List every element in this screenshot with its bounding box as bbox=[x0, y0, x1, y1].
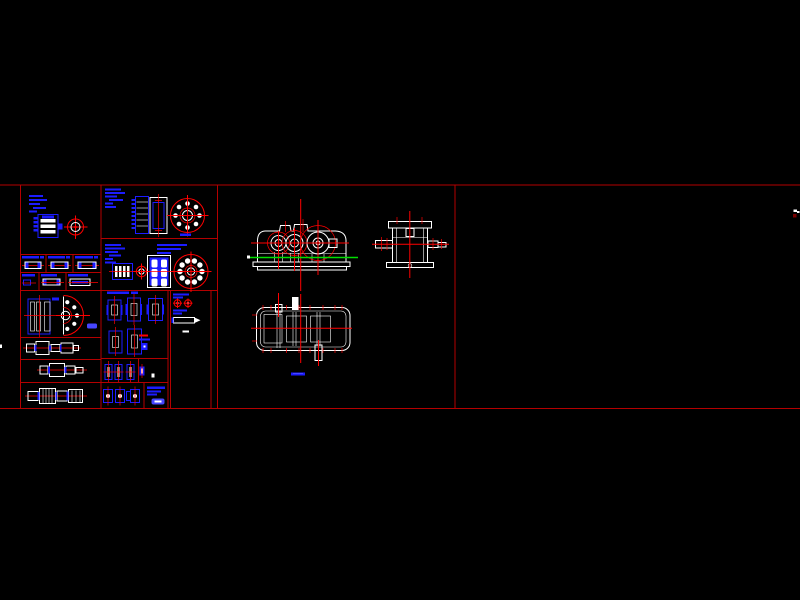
small-fasteners-drawing bbox=[104, 387, 166, 406]
front-view bbox=[251, 199, 350, 291]
blue-dash-marker bbox=[291, 373, 305, 376]
left-edge-speck bbox=[0, 345, 2, 349]
pin-fasteners-drawing bbox=[104, 361, 155, 382]
green-datum-line bbox=[247, 256, 358, 259]
side-view bbox=[372, 211, 449, 278]
top-view bbox=[251, 293, 352, 366]
cad-canvas[interactable] bbox=[0, 0, 800, 600]
shaft-3-drawing bbox=[25, 389, 87, 404]
gear-flange-section-drawing bbox=[24, 295, 97, 337]
gear-shaft-wheel-drawing bbox=[105, 189, 209, 238]
bearing-caps-drawing bbox=[107, 292, 165, 358]
frame-grid bbox=[0, 185, 800, 409]
accessory-column-drawing bbox=[172, 294, 201, 333]
shaft-2-drawing bbox=[37, 364, 87, 377]
coupling-bearing-wheel-drawing bbox=[105, 244, 212, 292]
flat-key-cells bbox=[22, 256, 99, 269]
edge-cursor-mark bbox=[793, 210, 800, 218]
shaft-1-drawing bbox=[23, 342, 81, 355]
cad-workspace bbox=[0, 0, 800, 600]
motor-unit-drawing bbox=[29, 195, 88, 239]
key-cells bbox=[22, 274, 98, 286]
